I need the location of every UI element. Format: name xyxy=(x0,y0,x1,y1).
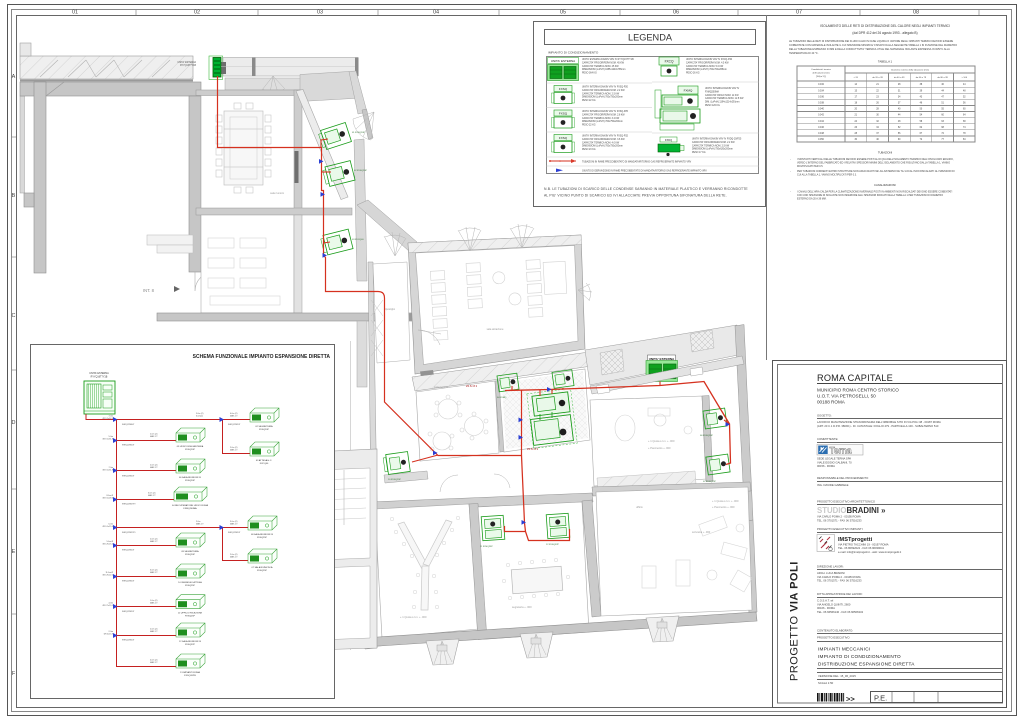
svg-text:MAX.CT: MAX.CT xyxy=(230,449,238,452)
svg-text:TEL. 06 3701571 - FAX 06 37516: TEL. 06 3701571 - FAX 06 37516233 xyxy=(817,518,862,522)
svg-text:RYYQ16T7Y1B: RYYQ16T7Y1B xyxy=(91,376,108,379)
svg-text:FXSQ20P: FXSQ20P xyxy=(185,554,195,556)
svg-text:COIBENTATE CON MATERIALE ISOLA: COIBENTATE CON MATERIALE ISOLANTE IL CUI… xyxy=(789,44,957,47)
svg-text:0.040: 0.040 xyxy=(818,109,824,111)
svg-text:FXDQ: FXDQ xyxy=(665,138,672,142)
svg-text:DITTA APPALTATRICE DEI LAVORI:: DITTA APPALTATRICE DEI LAVORI: xyxy=(817,592,863,596)
svg-text:PROGETTO ESECUTIVO: PROGETTO ESECUTIVO xyxy=(817,636,850,640)
svg-text:U.O.T. VIA PETROSELLI, 50: U.O.T. VIA PETROSELLI, 50 xyxy=(817,394,876,399)
svg-text:CAPACITA' FRIGORIFERA NOM. 45: CAPACITA' FRIGORIFERA NOM. 45 KW xyxy=(582,61,625,64)
svg-text:02: 02 xyxy=(194,10,200,16)
svg-text:Terna: Terna xyxy=(830,445,852,455)
svg-text:VIA ANGELO QUINTI, 2600: VIA ANGELO QUINTI, 2600 xyxy=(817,602,851,606)
svg-text:[W/(m°C)]: [W/(m°C)] xyxy=(816,76,826,78)
svg-text:10 FXSQ25P: 10 FXSQ25P xyxy=(388,479,401,481)
svg-text:05: 05 xyxy=(560,10,566,16)
svg-text:PROGETTO ESECUTIVO IMPIANTI: PROGETTO ESECUTIVO IMPIANTI xyxy=(817,527,863,531)
svg-text:12 SALA RIUNIONI 26: 12 SALA RIUNIONI 26 xyxy=(179,640,202,643)
svg-text:C.O.S.A.T. srl: C.O.S.A.T. srl xyxy=(817,599,834,603)
svg-text:11 UFFICIO RICEZIONE: 11 UFFICIO RICEZIONE xyxy=(178,613,203,615)
svg-text:FXSQ25P: FXSQ25P xyxy=(185,616,195,618)
svg-text:02 SEGRETERIA: 02 SEGRETERIA xyxy=(255,425,273,428)
svg-text:06 SALA RIUNIONI 20: 06 SALA RIUNIONI 20 xyxy=(179,476,202,479)
svg-text:KHRQ22M20T: KHRQ22M20T xyxy=(122,475,135,477)
svg-text:VIA PIETRO TACCHINI 19 - 0019: VIA PIETRO TACCHINI 19 - 00197 ROMA xyxy=(838,542,889,546)
svg-text:da 80 a 99: da 80 a 99 xyxy=(937,77,948,79)
svg-text:STUDIOBRADINI »: STUDIOBRADINI » xyxy=(817,506,885,515)
svg-text:D: D xyxy=(12,420,16,426)
svg-text:sala riunioni: sala riunioni xyxy=(270,191,284,195)
svg-text:+ Pavimento + .000: + Pavimento + .000 xyxy=(712,505,735,509)
svg-text:RYYQ16T7Y1B: RYYQ16T7Y1B xyxy=(180,65,197,67)
svg-text:FXMQ: FXMQ xyxy=(684,89,693,93)
svg-text:LAVORI DI MANUTENZIONE STRAORD: LAVORI DI MANUTENZIONE STRAORDINARIA DEL… xyxy=(817,420,941,424)
svg-text:PESO 120 KG: PESO 120 KG xyxy=(705,105,720,107)
svg-text:KHRQ22M20T: KHRQ22M20T xyxy=(228,424,241,426)
svg-text:ROMA CAPITALE: ROMA CAPITALE xyxy=(817,373,893,383)
svg-text:09 SEGRETERIA: 09 SEGRETERIA xyxy=(181,550,199,553)
svg-text:KHRQ22M29T9: KHRQ22M29T9 xyxy=(122,532,135,534)
svg-text:(ART. 20 C.1 D.P.R. 380/01) -: (ART. 20 C.1 D.P.R. 380/01) - ID. CATAST… xyxy=(817,424,939,428)
svg-text:OGGETTO:: OGGETTO: xyxy=(817,414,832,418)
svg-text:+ 1 Quota s.l.m. + .000: + 1 Quota s.l.m. + .000 xyxy=(400,615,427,619)
svg-text:FXSQ25P: FXSQ25P xyxy=(257,570,267,572)
svg-text:KHRQ22M29T9: KHRQ22M29T9 xyxy=(122,504,135,506)
svg-text:07: 07 xyxy=(796,10,802,16)
svg-text:CAPACITA' FRIGORIFERA NOM. 2.2: CAPACITA' FRIGORIFERA NOM. 2.2 KW xyxy=(582,89,625,92)
svg-text:ARCH. LUCA BRADINI: ARCH. LUCA BRADINI xyxy=(817,571,845,575)
svg-text:12 FXSQ32P: 12 FXSQ32P xyxy=(546,544,559,546)
svg-text:KHRQ22M20T: KHRQ22M20T xyxy=(122,611,135,613)
svg-text:01 FXSQ20P: 01 FXSQ20P xyxy=(352,132,365,134)
svg-text:FXSQ20P: FXSQ20P xyxy=(259,429,269,431)
svg-text:B: B xyxy=(12,193,16,199)
svg-text:FXCQ: FXCQ xyxy=(665,60,674,64)
svg-text:UNITA' INTERNA DAIKIN VRV IV F: UNITA' INTERNA DAIKIN VRV IV FXDQ-20/P25 xyxy=(692,138,742,141)
svg-text:TUBAZIONI IN RAME PRECOIBENTAT: TUBAZIONI IN RAME PRECOIBENTATO DI MANDA… xyxy=(582,160,692,163)
svg-text:KHRQ22M20T: KHRQ22M20T xyxy=(122,640,135,642)
svg-text:Ø15.9x22.2: Ø15.9x22.2 xyxy=(103,575,114,577)
svg-text:COMMITTENTE:: COMMITTENTE: xyxy=(817,437,839,441)
svg-text:02 FXSQ20P: 02 FXSQ20P xyxy=(354,170,367,172)
svg-text:A: A xyxy=(12,74,16,80)
svg-text:07 FXSQ25P: 07 FXSQ25P xyxy=(703,481,716,483)
svg-text:MAX.CT: MAX.CT xyxy=(150,571,158,574)
svg-text:IMSTprogetti: IMSTprogetti xyxy=(838,537,873,543)
svg-text:VIA CARLO POMA 2 - 00195 ROMA: VIA CARLO POMA 2 - 00195 ROMA xyxy=(817,515,861,519)
svg-text:PESO 364 KG: PESO 364 KG xyxy=(582,73,597,75)
svg-text:PESO 26 KG: PESO 26 KG xyxy=(686,73,700,75)
svg-text:DIMENSIONI (LxPxH) 1685x1240x7: DIMENSIONI (LxPxH) 1685x1240x765mm xyxy=(582,69,625,71)
svg-text:04 RECUPERATORE UFFICI ROMA: 04 RECUPERATORE UFFICI ROMA xyxy=(172,504,208,507)
svg-text:03 ATTESA H.C.: 03 ATTESA H.C. xyxy=(256,459,273,462)
svg-text:CAPACITA' TERMICA NOM. 5.0 KW: CAPACITA' TERMICA NOM. 5.0 KW xyxy=(686,65,724,68)
svg-text:PROGETTO ESECUTIVO ARCHITETTON: PROGETTO ESECUTIVO ARCHITETTONICO xyxy=(817,500,876,504)
svg-text:VERSIONE DEL: 15_06_2015: VERSIONE DEL: 15_06_2015 xyxy=(818,674,856,678)
svg-text:08 SALA RIUNIONI 26: 08 SALA RIUNIONI 26 xyxy=(251,533,274,536)
svg-text:MAX.CT: MAX.CT xyxy=(196,522,204,525)
svg-text:ESTERNO DA 20 A 39 MM.: ESTERNO DA 20 A 39 MM. xyxy=(797,197,827,200)
svg-text:CAPACITA' FRIGORIFERA NOM. 2.8: CAPACITA' FRIGORIFERA NOM. 2.8 KW xyxy=(582,113,625,116)
svg-text:10 INGRESSO ATTESA: 10 INGRESSO ATTESA xyxy=(178,581,202,584)
svg-text:PESO 23 KG: PESO 23 KG xyxy=(582,149,596,151)
svg-text:CAPACITA' TERMICA NOM. 2.5 KW: CAPACITA' TERMICA NOM. 2.5 KW xyxy=(582,92,620,95)
svg-text:TUBAZIONI: TUBAZIONI xyxy=(878,151,893,155)
svg-text:MAX.CT: MAX.CT xyxy=(150,630,158,633)
svg-text:06 FXSQ20P: 06 FXSQ20P xyxy=(700,435,713,437)
svg-text:PESO 22 KG: PESO 22 KG xyxy=(582,100,596,102)
svg-text:C: C xyxy=(12,313,16,319)
svg-text:0.036: 0.036 xyxy=(818,96,824,98)
svg-text:0.044: 0.044 xyxy=(818,121,824,123)
svg-text:MOLTIPLICATI PER 0.5.: MOLTIPLICATI PER 0.5. xyxy=(797,165,824,168)
svg-text:SCHEMA FUNZIONALE IMPIANTO ESP: SCHEMA FUNZIONALE IMPIANTO ESPANSIONE DI… xyxy=(193,354,331,360)
svg-text:KHRQ22M20T: KHRQ22M20T xyxy=(228,532,241,534)
svg-text:Conduttivita' termica: Conduttivita' termica xyxy=(811,68,832,71)
svg-text:CAPACITA' TERMICA NOM. 45 KW: CAPACITA' TERMICA NOM. 45 KW xyxy=(582,65,619,68)
svg-text:DIM. (LxPxH) 1194x1214x291mm: DIM. (LxPxH) 1194x1214x291mm xyxy=(705,102,740,104)
svg-text:IMPIANTI MECCANICI: IMPIANTI MECCANICI xyxy=(818,647,870,652)
svg-text:04 FXMQ: 04 FXMQ xyxy=(497,397,507,399)
svg-text:CONTENUTO ELABORATO:: CONTENUTO ELABORATO: xyxy=(817,629,853,633)
svg-text:01: 01 xyxy=(72,10,78,16)
svg-text:FXSQ20P: FXSQ20P xyxy=(185,449,195,451)
svg-text:0.038: 0.038 xyxy=(818,103,824,105)
svg-text:MAX.CT: MAX.CT xyxy=(150,466,158,469)
svg-text:00166 - ROMA: 00166 - ROMA xyxy=(817,606,835,610)
svg-text:KHRQ22M20T: KHRQ22M20T xyxy=(122,550,135,552)
svg-text:DIMENSIONI (LxPxH) 750x620x200: DIMENSIONI (LxPxH) 750x620x200mm xyxy=(692,149,733,151)
svg-text:UNITA' INTERNA DAIKIN VRV IV: UNITA' INTERNA DAIKIN VRV IV xyxy=(705,87,740,90)
svg-text:AL PIU' VICINO PUNTO DI SCARIC: AL PIU' VICINO PUNTO DI SCARICO ED IVI A… xyxy=(544,194,727,198)
svg-text:ING. DAVIDE GABRIELE: ING. DAVIDE GABRIELE xyxy=(817,483,849,487)
svg-text:0.046: 0.046 xyxy=(818,127,824,129)
svg-text:FXSQ32P: FXSQ32P xyxy=(185,644,195,646)
svg-text:Ø9.5x15.9: Ø9.5x15.9 xyxy=(466,385,478,388)
svg-text:DIREZIONE LAVORI:: DIREZIONE LAVORI: xyxy=(817,565,844,569)
svg-text:TEL. 06 80692022 - FAX 06 9603: TEL. 06 80692022 - FAX 06 96039041 xyxy=(838,546,885,550)
svg-text:CAPACITA' TERMICA NOM. 3.2 KW: CAPACITA' TERMICA NOM. 3.2 KW xyxy=(582,117,620,120)
svg-text:sala riunioni: sala riunioni xyxy=(434,385,448,389)
svg-text:Ø12.7x19.1: Ø12.7x19.1 xyxy=(103,605,114,607)
svg-text:KHRQ22M20T: KHRQ22M20T xyxy=(122,445,135,447)
svg-text:00188 ROMA: 00188 ROMA xyxy=(817,400,846,405)
svg-text:FXSQ: FXSQ xyxy=(559,87,568,91)
svg-text:DISTRIBUZIONE ESPANSIONE DIRET: DISTRIBUZIONE ESPANSIONE DIRETTA xyxy=(818,662,915,667)
svg-text:+ 1 Quota s.l.m. + .000: + 1 Quota s.l.m. + .000 xyxy=(648,439,675,443)
svg-text:da 20 a 39: da 20 a 39 xyxy=(872,77,883,79)
svg-text:IMPIANTO DI CONDIZIONAMENTO: IMPIANTO DI CONDIZIONAMENTO xyxy=(548,51,599,55)
svg-text:LE TUBAZIONI DELLE RETI DI DIS: LE TUBAZIONI DELLE RETI DI DISTRIBUZIONE… xyxy=(789,40,954,43)
svg-text:TABELLA 1: TABELLA 1 xyxy=(878,60,893,64)
svg-text:MAX.CT: MAX.CT xyxy=(150,435,158,438)
svg-text:CAPACITA' TERMICA NOM. 12.5 KW: CAPACITA' TERMICA NOM. 12.5 KW xyxy=(705,97,744,100)
svg-text:UNITA' ESTERNA: UNITA' ESTERNA xyxy=(177,61,196,64)
svg-text:segreteria + .000: segreteria + .000 xyxy=(512,605,532,609)
svg-text:UNITA' ESTERNA: UNITA' ESTERNA xyxy=(551,59,575,63)
svg-text:VIALE EGIDIO GALBANI, 70: VIALE EGIDIO GALBANI, 70 xyxy=(817,460,852,464)
svg-text:PESO 17 KG: PESO 17 KG xyxy=(692,152,706,154)
svg-text:Diametro esterno della tubazio: Diametro esterno della tubazione (mm) xyxy=(891,69,929,72)
svg-text:0.032: 0.032 xyxy=(818,84,824,86)
svg-text:UNITA' INTERNA DAIKIN VRV IV F: UNITA' INTERNA DAIKIN VRV IV FXSQ-P25 xyxy=(582,110,629,113)
svg-text:Ø19.1x25.4: Ø19.1x25.4 xyxy=(103,526,114,528)
svg-text:Ø9.5x15.9: Ø9.5x15.9 xyxy=(104,634,114,636)
svg-text:CAPACITA' TERMICA NOM. 2.5 KW: CAPACITA' TERMICA NOM. 2.5 KW xyxy=(692,144,730,147)
svg-text:0.034: 0.034 xyxy=(818,90,824,92)
svg-text:CAPACITA' FRIGO NOM. 11 KW: CAPACITA' FRIGO NOM. 11 KW xyxy=(705,94,739,97)
svg-text:06: 06 xyxy=(673,10,679,16)
svg-text:MAX.CT: MAX.CT xyxy=(150,540,158,543)
svg-text:sala attrazione: sala attrazione xyxy=(487,327,504,331)
svg-text:MUNICIPIO ROMA CENTRO STORICO: MUNICIPIO ROMA CENTRO STORICO xyxy=(817,388,899,393)
svg-text:CAPACITA' FRIGORIFERA NOM. 4.5: CAPACITA' FRIGORIFERA NOM. 4.5 KW xyxy=(686,61,729,64)
svg-text:MAX.CT: MAX.CT xyxy=(230,415,238,418)
svg-text:FXSQ25P: FXSQ25P xyxy=(257,537,267,539)
svg-text:CANALIZZAZIONI: CANALIZZAZIONI xyxy=(874,183,896,187)
svg-text:00156 - ROMA: 00156 - ROMA xyxy=(817,464,835,468)
svg-text:03 FXCQ40: 03 FXCQ40 xyxy=(352,239,364,241)
svg-text:FXMQ200MA: FXMQ200MA xyxy=(183,507,197,510)
svg-text:CAPACITA' FRIGORIFERA NOM. 2.2: CAPACITA' FRIGORIFERA NOM. 2.2 KW xyxy=(692,141,735,144)
svg-text:FXSQ: FXSQ xyxy=(559,136,568,140)
svg-text:07 SALA RIUNIONI A: 07 SALA RIUNIONI A xyxy=(252,566,273,569)
svg-text:DIMENSIONI (LxPxH) 700x750x200: DIMENSIONI (LxPxH) 700x750x200mm xyxy=(582,121,623,123)
svg-text:DIMENSIONI (LxPxH) 700x750x200: DIMENSIONI (LxPxH) 700x750x200mm xyxy=(582,146,623,148)
svg-text:(dal DPR 412 del 26 agosto 199: (dal DPR 412 del 26 agosto 1993 - allega… xyxy=(852,31,917,35)
svg-text:Ø19.1x34.9: Ø19.1x34.9 xyxy=(103,418,114,420)
svg-text:13 IMPIANTI ROMA: 13 IMPIANTI ROMA xyxy=(180,671,200,674)
svg-text:N.B. LE TUBAZIONI DI SCARICO D: N.B. LE TUBAZIONI DI SCARICO DELLE CONDE… xyxy=(544,187,748,191)
svg-text:LEGENDA: LEGENDA xyxy=(628,33,672,43)
svg-text:SEDE LEGALE TERNA SPA: SEDE LEGALE TERNA SPA xyxy=(817,457,851,461)
svg-text:MAX.CT: MAX.CT xyxy=(230,522,238,525)
svg-text:DELLA TUBAZIONE ESPRESSO IN MM: DELLA TUBAZIONE ESPRESSO IN MM E DELLA C… xyxy=(789,48,950,51)
svg-text:scrivania + .000: scrivania + .000 xyxy=(692,530,711,534)
svg-text:ripostiglio: ripostiglio xyxy=(385,308,396,311)
svg-text:Ø9.5x15.9: Ø9.5x15.9 xyxy=(527,448,539,451)
svg-text:TEL. 06 66566140 - FAX 06 6656: TEL. 06 66566140 - FAX 06 66566343 xyxy=(817,610,864,614)
svg-text:+ Pavimento + .000: + Pavimento + .000 xyxy=(648,446,671,450)
svg-text:FXMQ200MA: FXMQ200MA xyxy=(705,90,719,93)
svg-text:MAX.CT: MAX.CT xyxy=(230,556,238,559)
svg-text:05 UFFICIO/SEGRETERIA: 05 UFFICIO/SEGRETERIA xyxy=(177,445,204,448)
svg-text:IMPIANTO DI CONDIZIONAMENTO: IMPIANTO DI CONDIZIONAMENTO xyxy=(818,654,901,659)
svg-text:CAPACITA' FRIGORIFERA NOM. 3.6: CAPACITA' FRIGORIFERA NOM. 3.6 KW xyxy=(582,138,625,141)
svg-text:CAPACITA' TERMICA NOM. 4.0 KW: CAPACITA' TERMICA NOM. 4.0 KW xyxy=(582,141,620,144)
svg-text:KHRQ22M64T: KHRQ22M64T xyxy=(122,424,135,426)
svg-text:11 FXSQ25P: 11 FXSQ25P xyxy=(480,546,493,548)
svg-text:Ø19.1x31.8: Ø19.1x31.8 xyxy=(103,469,114,471)
svg-text:TEMPERATURA DI 40 °C.: TEMPERATURA DI 40 °C. xyxy=(789,52,819,55)
svg-text:Ø15.9x25.4: Ø15.9x25.4 xyxy=(103,544,114,546)
svg-text:FXDQ20PB: FXDQ20PB xyxy=(184,675,196,677)
svg-text:TEL. 06 3701571 - FAX 06 37516: TEL. 06 3701571 - FAX 06 37516233 xyxy=(817,579,862,583)
svg-text:DIMENSIONI (LxPxH) 700x750x200: DIMENSIONI (LxPxH) 700x750x200mm xyxy=(582,97,623,99)
svg-text:UNITA' ESTERNA DAIKIN VRV IV R: UNITA' ESTERNA DAIKIN VRV IV RYYQ16T7Y1B xyxy=(582,58,634,61)
svg-text:RESPONSABILE DEL PROCEDIMENTO: RESPONSABILE DEL PROCEDIMENTO xyxy=(817,476,869,480)
svg-text:> 100: > 100 xyxy=(962,76,968,79)
svg-text:UNITA' INTERNA DAIKIN VRV IV F: UNITA' INTERNA DAIKIN VRV IV FXSQ-P32 xyxy=(582,135,629,138)
svg-text:FXSQ: FXSQ xyxy=(559,112,568,116)
svg-text:0.048: 0.048 xyxy=(818,133,824,135)
svg-text:UNITA' INTERNA DAIKIN VRV IV F: UNITA' INTERNA DAIKIN VRV IV FXSQ-P20 xyxy=(582,86,629,89)
svg-text:DIMENSIONI (LxPxH) 700x700x288: DIMENSIONI (LxPxH) 700x700x288mm xyxy=(686,69,727,71)
svg-text:>>: >> xyxy=(846,695,855,704)
svg-text:3.0m(2): 3.0m(2) xyxy=(196,416,203,418)
svg-text:CUI ALLA TABELLA 1, VANNO MOLT: CUI ALLA TABELLA 1, VANNO MOLTIPLICATI P… xyxy=(797,173,857,176)
svg-text:03: 03 xyxy=(317,10,323,16)
svg-text:da 40 a 59: da 40 a 59 xyxy=(894,77,905,79)
svg-text:FXCQ40: FXCQ40 xyxy=(260,463,269,465)
svg-text:MAX.CT: MAX.CT xyxy=(150,602,158,605)
svg-text:da 60 a 79: da 60 a 79 xyxy=(916,77,927,79)
svg-text:SCALA 1:50: SCALA 1:50 xyxy=(818,681,834,685)
svg-text:0.050: 0.050 xyxy=(818,139,824,141)
svg-text:FXSQ20P: FXSQ20P xyxy=(185,480,195,482)
svg-text:MAX.CT: MAX.CT xyxy=(150,661,158,664)
svg-text:UNITA' INTERNA DAIKIN VRV IV F: UNITA' INTERNA DAIKIN VRV IV FXCQ-P40 xyxy=(686,58,733,61)
svg-text:MAX.CT: MAX.CT xyxy=(148,494,156,497)
svg-text:0.042: 0.042 xyxy=(818,115,824,117)
svg-text:FXSQ25P: FXSQ25P xyxy=(185,585,195,587)
svg-text:ufficio: ufficio xyxy=(636,505,643,509)
svg-text:P.E.: P.E. xyxy=(874,694,887,703)
svg-text:ISOLAMENTO DELLE RETI DI DISTR: ISOLAMENTO DELLE RETI DI DISTRIBUZIONE D… xyxy=(820,24,950,28)
svg-text:E: E xyxy=(12,549,16,555)
svg-text:08: 08 xyxy=(913,10,919,16)
svg-text:GIUNTO DI DERIVAZIONE IN RAME: GIUNTO DI DERIVAZIONE IN RAME PRECOIBENT… xyxy=(582,169,707,172)
svg-text:Ø19.1x31.8: Ø19.1x31.8 xyxy=(103,439,114,441)
svg-text:VIA CARLO POMA 2 - 00195 ROMA: VIA CARLO POMA 2 - 00195 ROMA xyxy=(817,575,861,579)
svg-text:e-mail: info@imstprogetti.it -: e-mail: info@imstprogetti.it - web: www.… xyxy=(838,550,901,554)
svg-text:INT. 8: INT. 8 xyxy=(143,288,155,293)
svg-text:PROGETTO VIA POLI: PROGETTO VIA POLI xyxy=(789,561,801,681)
svg-text:+ 1 Quota s.l.m. + .000: + 1 Quota s.l.m. + .000 xyxy=(712,499,739,503)
svg-text:PESO 22 KG: PESO 22 KG xyxy=(582,125,596,127)
svg-text:04: 04 xyxy=(433,10,439,16)
svg-text:Ø19.1x28.6: Ø19.1x28.6 xyxy=(103,498,114,500)
svg-text:KHRQ22M20T: KHRQ22M20T xyxy=(122,581,135,583)
svg-text:dell'isolante (mm): dell'isolante (mm) xyxy=(812,72,829,75)
